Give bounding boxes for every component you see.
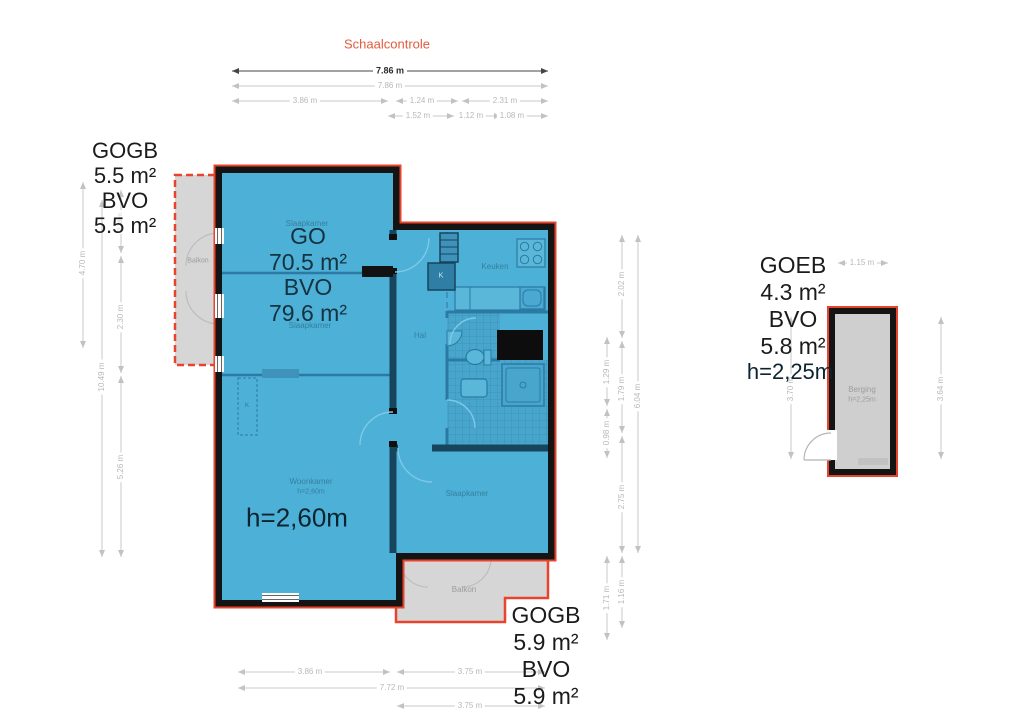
dim-label: 1.71 m <box>603 583 611 613</box>
shower-icon <box>502 364 544 406</box>
closet-label-living: K <box>245 403 249 409</box>
area-line: GOEB <box>760 252 826 279</box>
floorplan-page: Schaalcontrole 7.86 m 7.86 m 3.86 m 1.24… <box>0 0 1024 724</box>
room-label-living: Woonkamer <box>290 478 333 486</box>
dim-label: 3.75 m <box>455 668 485 676</box>
dim-label: 3.64 m <box>937 374 945 404</box>
dim-label: 7.72 m <box>377 684 407 692</box>
room-label-hall: Hal <box>414 332 426 340</box>
area-line: BVO <box>92 188 158 213</box>
room-label-storage: Berging <box>848 386 876 394</box>
storage-height-label: h=2,25m <box>747 359 833 385</box>
area-line: 5.9 m² <box>511 629 580 656</box>
area-line: 4.3 m² <box>760 279 826 306</box>
area-line: 5.5 m² <box>92 163 158 188</box>
dim-label: 1.24 m <box>407 97 437 105</box>
area-label-top-left: GOGB 5.5 m² BVO 5.5 m² <box>92 138 158 238</box>
area-line: 70.5 m² <box>269 250 347 276</box>
room-label-bedroom3: Slaapkamer <box>446 490 489 498</box>
area-label-bottom-right: GOGB 5.9 m² BVO 5.9 m² <box>511 602 580 710</box>
shaft <box>497 330 543 360</box>
ceiling-height-label: h=2,60m <box>246 503 348 534</box>
area-line: 5.5 m² <box>92 213 158 238</box>
area-line: 5.8 m² <box>760 333 826 360</box>
room-label-storage-height: h=2,25m <box>848 397 875 404</box>
area-line: GOGB <box>511 602 580 629</box>
dim-label: 1.29 m <box>603 357 611 387</box>
area-line: BVO <box>511 656 580 683</box>
dim-label: 5.26 m <box>117 452 125 482</box>
area-line: BVO <box>760 306 826 333</box>
dim-label: 2.02 m <box>618 269 626 299</box>
closet-label-kitchen: K <box>439 273 444 280</box>
dim-label: 1.16 m <box>618 577 626 607</box>
dim-label: 3.86 m <box>295 668 325 676</box>
page-title: Schaalcontrole <box>344 38 430 51</box>
room-label-balcony-bottom: Balkon <box>452 586 476 594</box>
room-label-living-height: h=2,60m <box>297 489 324 496</box>
dim-label: 6.04 m <box>634 381 642 411</box>
dim-label: 1.79 m <box>618 374 626 404</box>
dim-label: 4.70 m <box>79 248 87 278</box>
room-label-bedroom1: Slaapkamer <box>286 220 329 228</box>
dim-label: 1.08 m <box>497 112 527 120</box>
dim-label: 2.31 m <box>490 97 520 105</box>
dim-label: 3.86 m <box>290 97 320 105</box>
dim-label: 0.98 m <box>603 418 611 448</box>
area-label-storage: GOEB 4.3 m² BVO 5.8 m² <box>760 252 826 360</box>
area-line: BVO <box>269 275 347 301</box>
toilet-icon <box>466 350 484 365</box>
room-label-bedroom2: Slaapkamer <box>289 322 332 330</box>
room-label-balcony-left: Balkon <box>187 258 208 265</box>
dim-label: 2.75 m <box>618 482 626 512</box>
dim-label: 1.52 m <box>403 112 433 120</box>
area-line: 5.9 m² <box>511 683 580 710</box>
dim-label: 3.75 m <box>455 702 485 710</box>
area-label-main: GO 70.5 m² BVO 79.6 m² <box>269 224 347 326</box>
area-line: GOGB <box>92 138 158 163</box>
dim-label: 2.30 m <box>117 302 125 332</box>
room-label-kitchen: Keuken <box>481 263 508 271</box>
dim-label: 7.86 m <box>375 82 405 90</box>
dim-label: 1.12 m <box>456 112 486 120</box>
dim-label: 1.15 m <box>847 259 877 267</box>
dim-label: 10.49 m <box>98 360 106 395</box>
dim-label: 7.86 m <box>373 67 407 76</box>
bath-sink-icon <box>461 379 487 397</box>
